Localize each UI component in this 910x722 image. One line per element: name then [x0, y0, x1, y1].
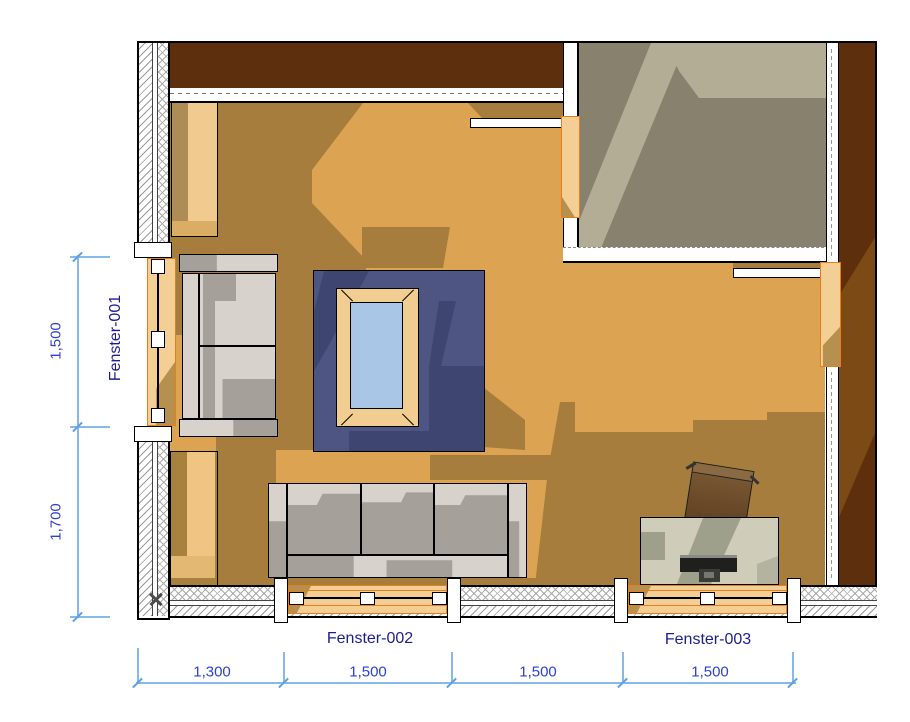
- sofa-backrest: [287, 555, 508, 578]
- wall-partition-adjacent-bottom[interactable]: [563, 247, 839, 263]
- window-mullion: [151, 259, 165, 274]
- window-mullion: [629, 592, 644, 605]
- sofa-arm: [508, 483, 527, 578]
- wall-stub-top[interactable]: [470, 118, 563, 128]
- window-end-cap: [447, 578, 461, 623]
- dimension-line: [136, 682, 796, 684]
- sofa-backrest: [182, 273, 199, 419]
- window-end-cap: [614, 578, 628, 623]
- sofa-three-seat[interactable]: [268, 483, 527, 578]
- window-frame-edge: [289, 590, 446, 591]
- sill-shade: [562, 117, 579, 217]
- window-label-fenster-001[interactable]: Fenster-001: [107, 295, 125, 381]
- wall-outline-top: [137, 41, 877, 43]
- sofa-arm: [179, 419, 278, 437]
- table-bevel: [341, 413, 353, 425]
- cabinet-shade: [187, 452, 215, 562]
- sofa-two-seat[interactable]: [179, 254, 279, 438]
- wall-layer: [158, 42, 168, 242]
- floor-adjacent-room[interactable]: [578, 42, 828, 250]
- wall-top-inner-band: [170, 88, 565, 103]
- sofa-shade: [435, 484, 507, 554]
- sofa-cushion: [361, 483, 434, 555]
- sill-shade: [821, 263, 840, 366]
- sofa-cushion: [199, 273, 276, 346]
- wall-partition-right-upper[interactable]: [826, 42, 839, 263]
- dimension-label[interactable]: 1,300: [193, 664, 231, 681]
- wall-layer: [139, 42, 152, 242]
- dimension-label[interactable]: 1,500: [519, 664, 557, 681]
- sofa-shade: [509, 484, 526, 577]
- window-sill: [628, 585, 787, 614]
- dimension-label[interactable]: 1,500: [48, 322, 65, 360]
- coffee-table[interactable]: [336, 288, 419, 427]
- sofa-shade: [180, 420, 277, 436]
- table-bevel: [341, 289, 353, 301]
- window-mullion: [360, 592, 375, 605]
- table-bevel: [402, 413, 414, 425]
- window-label-fenster-002[interactable]: Fenster-002: [327, 630, 413, 648]
- cabinet-shade: [171, 556, 215, 578]
- sofa-shade: [362, 484, 433, 554]
- wall-top-exterior[interactable]: [170, 42, 565, 88]
- window-mullion: [289, 592, 304, 605]
- window-mullion: [772, 592, 787, 605]
- wall-right-exterior[interactable]: [838, 42, 877, 585]
- sofa-arm: [268, 483, 287, 578]
- monitor-stand-base: [704, 572, 714, 578]
- window-sill: [288, 585, 447, 614]
- sofa-arm: [179, 254, 278, 272]
- floor-plan-canvas: 1,500 1,700 Fenster-001 1,300 1,500 1,50…: [0, 0, 910, 722]
- wall-left-upper[interactable]: [137, 42, 170, 242]
- window-end-cap: [787, 578, 801, 623]
- window-frame-edge: [629, 590, 786, 591]
- overhead-dashed-line: [170, 93, 565, 94]
- door-opening-right[interactable]: [820, 262, 841, 367]
- cabinet-shade: [172, 99, 188, 236]
- wall-shade: [838, 42, 875, 585]
- dimension-label[interactable]: 1,700: [48, 503, 65, 541]
- window-mullion: [151, 331, 165, 348]
- dimension-line: [77, 255, 79, 618]
- partition-dashed-line: [831, 48, 832, 256]
- cabinet-shade: [172, 221, 217, 236]
- window-label-fenster-003[interactable]: Fenster-003: [665, 631, 751, 649]
- wall-partition-right-lower[interactable]: [826, 366, 839, 585]
- dimension-label[interactable]: 1,500: [349, 664, 387, 681]
- window-end-cap: [134, 242, 172, 258]
- extension-line: [137, 648, 139, 684]
- window-frame-edge: [289, 605, 446, 606]
- cabinet-top-left[interactable]: [171, 98, 218, 237]
- window-end-cap: [274, 578, 288, 623]
- window-mullion: [432, 592, 447, 605]
- table-glass-top: [350, 302, 403, 409]
- door-opening-adjacent-left[interactable]: [561, 116, 580, 218]
- wall-stub-right[interactable]: [733, 268, 821, 278]
- sofa-shade: [180, 255, 277, 271]
- sofa-shade: [200, 274, 275, 345]
- window-sill: [147, 258, 176, 426]
- window-mullion: [700, 592, 715, 605]
- cabinet-bottom-left[interactable]: [170, 451, 218, 587]
- corner-marker-x[interactable]: [147, 590, 165, 608]
- window-frame-edge: [629, 605, 786, 606]
- dimension-label[interactable]: 1,500: [691, 664, 729, 681]
- sofa-shade: [288, 484, 360, 554]
- monitor-stand: [699, 569, 720, 582]
- sofa-shade: [269, 484, 286, 577]
- window-mullion: [151, 408, 165, 423]
- table-bevel: [402, 289, 414, 301]
- window-end-cap: [134, 426, 172, 442]
- sofa-cushion: [199, 346, 276, 419]
- partition-dashed-line: [831, 372, 832, 578]
- sofa-cushion: [434, 483, 508, 555]
- sofa-cushion: [287, 483, 361, 555]
